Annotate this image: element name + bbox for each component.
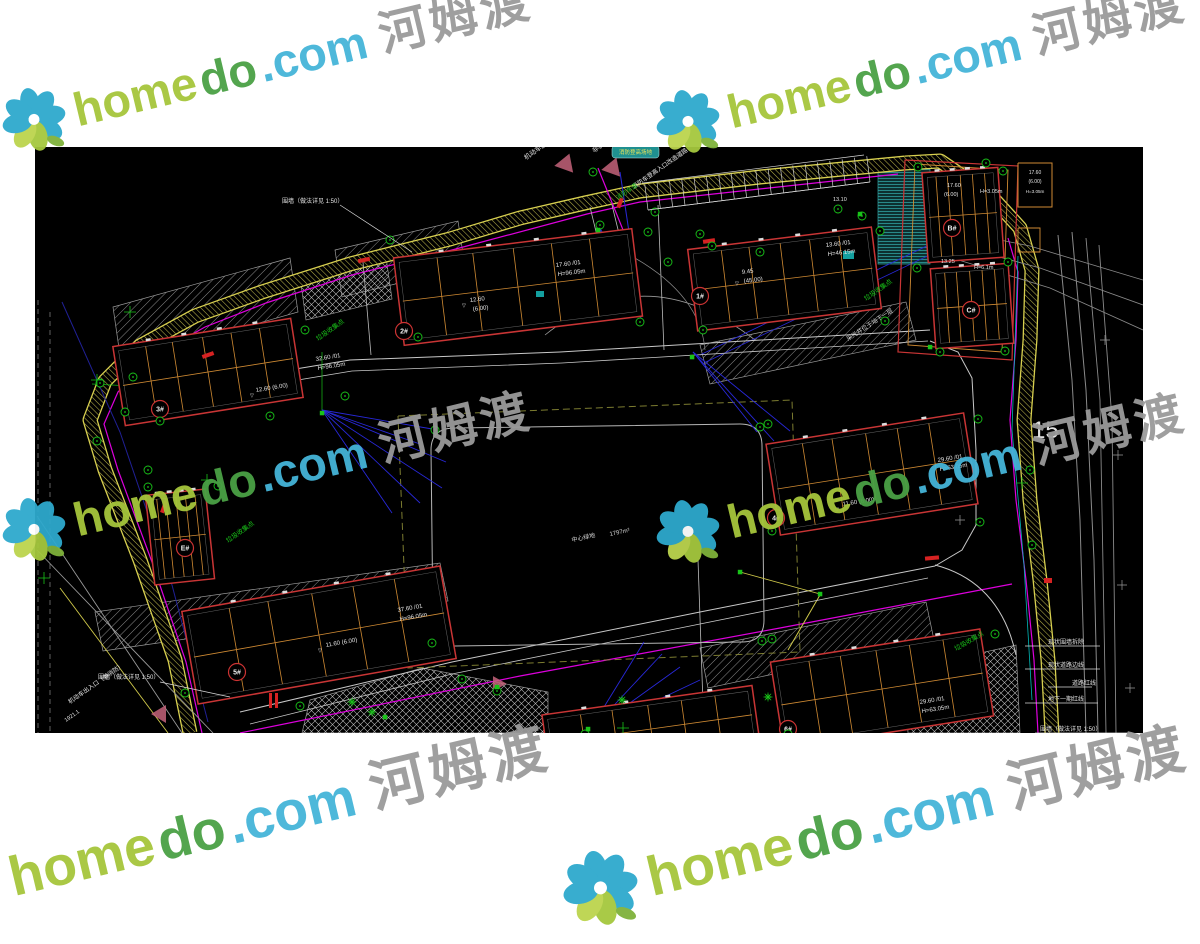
homedo-flower-logo-icon	[548, 835, 653, 940]
plan-label: H=6.1m	[974, 265, 994, 271]
plan-label: H=3.05m	[980, 189, 1003, 195]
plan-label: 13.10	[833, 197, 847, 203]
plan-label: H=3.05m	[1026, 189, 1045, 194]
building-4#	[766, 410, 978, 535]
tree-icon	[368, 708, 377, 717]
plan-label: 17.60	[947, 183, 961, 189]
watermark-text-doo: do	[848, 46, 915, 105]
watermark-text-com: .com	[860, 768, 999, 852]
plan-label: ▽	[735, 281, 739, 287]
plan-label: 现状围墙拆除	[1048, 638, 1084, 646]
building-label: 3#	[156, 407, 164, 414]
plan-label: ▽	[462, 303, 466, 309]
watermark-text-cn: 河姆渡	[374, 0, 537, 60]
plan-label: 1797m²	[609, 528, 630, 538]
plan-label: ▽	[318, 648, 322, 654]
plan-label: 垃圾收集点	[314, 316, 346, 342]
plan-label: (6.00)	[1028, 179, 1041, 185]
plan-label: (6.00)	[944, 192, 959, 198]
watermark: homedo.com河姆渡	[643, 0, 1195, 169]
plan-label: 围墙（做法详见 1:50）	[282, 197, 343, 205]
watermark-text-doo: do	[790, 799, 869, 869]
building-label: C#	[967, 308, 976, 315]
watermark-text-com: .com	[908, 19, 1026, 90]
watermark-text-doo: do	[152, 799, 231, 869]
building-label: 5#	[233, 670, 241, 677]
plan-label: 围墙（做法详见 1:50）	[1040, 725, 1101, 733]
plan-label: H=96.05m	[317, 362, 345, 372]
fire-badge-label: 消防登高场地	[619, 148, 653, 156]
watermark-text-cn: 河姆渡	[1002, 720, 1194, 818]
watermark-text-home: home	[68, 58, 201, 133]
plan-label: 32.60 /01	[315, 353, 341, 363]
plan-label: ▽	[250, 393, 254, 399]
tree-icon	[764, 693, 773, 702]
plan-label: 垃圾收集点	[224, 518, 256, 544]
cad-drawing-canvas: 3#2#1#B#C#4#E#5#6#消防登高场地围墙（做法详见 1:50）机动车…	[35, 147, 1143, 733]
plan-label: 中心绿地	[571, 531, 596, 544]
homedo-flower-logo-icon	[0, 835, 15, 940]
watermark-text-cn: 河姆渡	[364, 720, 556, 818]
plan-label: 地下一期红线	[1048, 695, 1084, 703]
watermark-text-cn: 河姆渡	[1028, 0, 1191, 62]
cad-viewer-page: { "page":{"w":1200,"h":900,"bg":"#ffffff…	[0, 0, 1200, 900]
plan-label: 机动车出入口（兼消防）	[67, 661, 126, 705]
building-label: E#	[181, 546, 190, 553]
survey-cross-icon	[38, 572, 50, 584]
watermark-text-doo: do	[194, 44, 261, 103]
plan-label: 15	[1032, 417, 1059, 444]
building-E#	[145, 487, 214, 585]
tree-icon	[348, 698, 357, 707]
building-label: B#	[948, 226, 957, 233]
plan-label: 现状道路边线	[1048, 661, 1084, 669]
survey-cross-icon	[201, 474, 213, 486]
plan-label: 道路红线	[1072, 679, 1096, 687]
plan-label: 1921.1	[64, 709, 81, 724]
building-row	[542, 683, 760, 733]
watermark-text-home: home	[722, 60, 855, 135]
tree-icon	[618, 696, 627, 705]
plan-label: 17.60	[1029, 170, 1042, 176]
site-plan: 3#2#1#B#C#4#E#5#6#消防登高场地围墙（做法详见 1:50）机动车…	[35, 147, 1143, 733]
plan-label: ▽	[835, 507, 839, 513]
watermark-text-com: .com	[254, 17, 372, 88]
plan-label: 机动车出入口	[522, 147, 559, 162]
building-label: 1#	[696, 294, 704, 301]
watermark: homedo.com河姆渡	[0, 702, 561, 944]
building-B#	[922, 165, 1004, 263]
watermark: homedo.com河姆渡	[547, 702, 1198, 944]
watermark-text-home: home	[641, 815, 798, 903]
building-label: 2#	[400, 329, 408, 336]
watermark-text-com: .com	[222, 768, 361, 852]
watermark-text-home: home	[3, 815, 160, 903]
building-label: 4#	[772, 516, 780, 523]
plan-label: 13.25	[941, 259, 955, 265]
watermark: homedo.com河姆渡	[0, 0, 541, 167]
entrance-arrow-icon	[554, 150, 578, 173]
